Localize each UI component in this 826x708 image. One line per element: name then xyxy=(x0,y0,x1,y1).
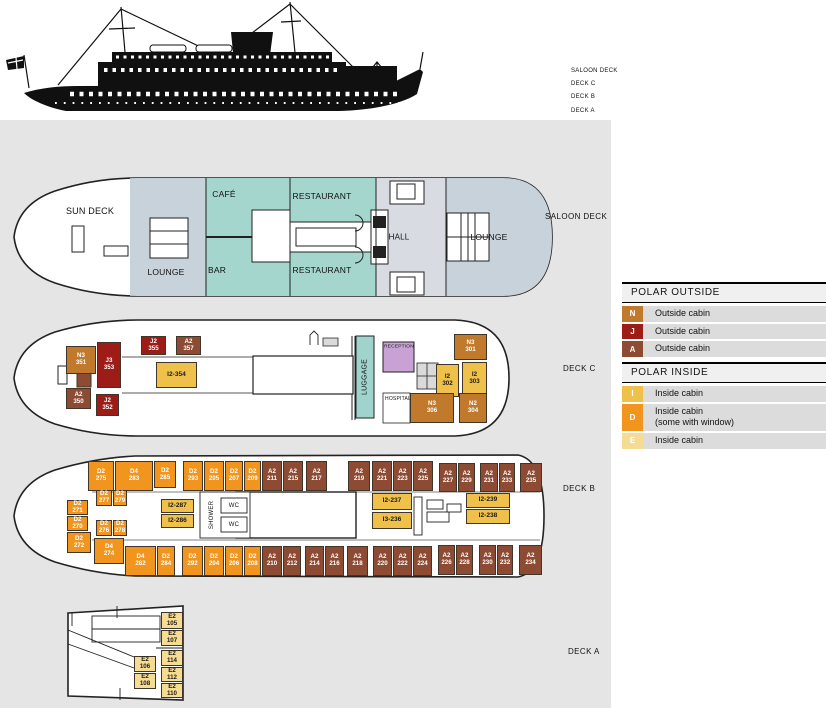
cabin-A2-235: A2235 xyxy=(520,463,542,492)
cabin-A2-216: A2216 xyxy=(325,546,344,576)
cabin-D2-270: D2270 xyxy=(67,516,88,531)
cabin-A2-219: A2219 xyxy=(348,461,370,491)
cabin-A2-210: A2210 xyxy=(262,546,282,576)
cabin-D2-206: D2206 xyxy=(225,546,243,576)
cabin-A2-225: A2225 xyxy=(413,461,433,491)
cabin-E2-110: E2110 xyxy=(161,683,183,698)
legend-label-N: Outside cabin xyxy=(643,306,710,322)
cabin-I2-238: I2-238 xyxy=(466,509,510,524)
cabin-A2-234: A2234 xyxy=(519,545,542,575)
deck-label-saloon: SALOON DECK xyxy=(545,212,607,221)
legend-swatch-D: D xyxy=(622,404,643,431)
cabin-D4-274: D4274 xyxy=(94,538,124,564)
cabin-N3-351: N3351 xyxy=(66,346,96,374)
cabin-A2-222: A2222 xyxy=(393,546,412,576)
cabin-J2-352: J2352 xyxy=(96,394,119,416)
room-label-caf-: CAFÉ xyxy=(212,189,235,199)
cabin-A2-229: A2229 xyxy=(458,463,475,492)
cabin-A2-212: A2212 xyxy=(283,546,301,576)
room-label-wc: WC xyxy=(229,503,239,509)
legend-row-I: IInside cabin xyxy=(622,386,826,402)
cabin-D2-279: D2279 xyxy=(113,490,127,506)
cabin-I3-236: I3-236 xyxy=(372,512,412,529)
cabin-D2-293: D2293 xyxy=(183,461,203,491)
cabin-N3-301: N3301 xyxy=(454,334,487,360)
cabin-A2-350: A2350 xyxy=(66,388,91,409)
cabin-A2-223: A2223 xyxy=(393,461,412,491)
cabin-A2-211: A2211 xyxy=(262,461,282,491)
cabin-J2-355: J2355 xyxy=(141,336,166,355)
cabin-A2-214: A2214 xyxy=(305,546,324,576)
deck-label-a: DECK A xyxy=(568,647,600,656)
room-label-restaurant: RESTAURANT xyxy=(293,191,352,201)
room-label-luggage: LUGGAGE xyxy=(362,359,369,395)
cabin-A2-231: A2231 xyxy=(480,463,498,492)
cabin-D2-208: D2208 xyxy=(244,546,261,576)
ship-profile-deck-label-deck-a: DECK A xyxy=(571,108,595,114)
cabin-A2-357: A2357 xyxy=(176,336,201,355)
cabin-A2-227: A2227 xyxy=(439,463,457,492)
cabin-A2-215: A2215 xyxy=(283,461,303,491)
cabin-E2-108: E2108 xyxy=(134,673,156,689)
ship-profile-deck-label-saloon-deck: SALOON DECK xyxy=(571,68,618,74)
cabin-N2-304: N2304 xyxy=(459,393,487,423)
legend-label-E: Inside cabin xyxy=(643,433,703,449)
legend-label-D: Inside cabin(some with window) xyxy=(643,404,734,431)
legend-swatch-I: I xyxy=(622,386,643,402)
legend-swatch-N: N xyxy=(622,306,643,322)
legend-header-polar-inside: POLAR INSIDE xyxy=(622,362,826,383)
cabin-D2-205: D2205 xyxy=(204,461,224,491)
room-label-hall: HALL xyxy=(389,233,410,242)
cabin-A2-230: A2230 xyxy=(479,545,496,575)
room-label-shower: SHOWER xyxy=(209,501,215,529)
cabin-A2-232: A2232 xyxy=(497,545,513,575)
room-label-sun-deck: SUN DECK xyxy=(66,206,114,216)
cabin-I2-303: I2303 xyxy=(462,362,487,395)
legend-swatch-J: J xyxy=(622,324,643,340)
ship-profile-deck-label-deck-b: DECK B xyxy=(571,94,595,100)
cabin-A2-218: A2218 xyxy=(347,546,368,576)
cabin-D4-283: D4283 xyxy=(115,461,153,491)
cabin-A2-224: A2224 xyxy=(413,546,432,576)
cabin-D2-207: D2207 xyxy=(225,461,243,491)
cabin-D2-272: D2272 xyxy=(67,532,91,553)
cabin-D2-275: D2275 xyxy=(88,461,114,491)
cabin-A2-220: A2220 xyxy=(373,546,392,576)
cabin-legend: POLAR OUTSIDENOutside cabinJOutside cabi… xyxy=(622,282,826,451)
room-label-wc: WC xyxy=(229,522,239,528)
cabin-I2-286: I2-286 xyxy=(161,514,194,528)
cabin-E2-107: E2107 xyxy=(161,630,183,646)
cabin-D2-271: D2271 xyxy=(67,500,88,515)
room-label-lounge: LOUNGE xyxy=(147,267,184,277)
legend-label-A: Outside cabin xyxy=(643,341,710,357)
legend-row-E: EInside cabin xyxy=(622,433,826,449)
legend-row-N: NOutside cabin xyxy=(622,306,826,322)
cabin-J3-353: J3353 xyxy=(97,342,121,388)
cabin-E2-105: E2105 xyxy=(161,612,183,629)
legend-label-I: Inside cabin xyxy=(643,386,703,402)
legend-label-J: Outside cabin xyxy=(643,324,710,340)
cabin-E2-114: E2114 xyxy=(161,650,183,666)
cabin-A2-233: A2233 xyxy=(499,463,515,492)
room-label-restaurant: RESTAURANT xyxy=(293,265,352,275)
legend-header-polar-outside: POLAR OUTSIDE xyxy=(622,282,826,303)
cabin-E2-106: E2106 xyxy=(134,656,156,672)
cabin-D2-209: D2209 xyxy=(244,461,261,491)
cabin-I2-287: I2-287 xyxy=(161,499,194,513)
deck-label-c: DECK C xyxy=(563,364,596,373)
cabin-D2-284: D2284 xyxy=(157,546,175,576)
legend-swatch-A: A xyxy=(622,341,643,357)
cabin-I2-354: I2-354 xyxy=(156,362,197,388)
cabin-A2-221: A2221 xyxy=(372,461,392,491)
room-label-bar: BAR xyxy=(208,265,226,275)
cabin-I2-239: I2-239 xyxy=(466,493,510,508)
cabin-D2-204: D2204 xyxy=(204,546,224,576)
room-label-lounge: LOUNGE xyxy=(470,232,507,242)
cabin-D2-285: D2285 xyxy=(154,461,176,488)
deck-label-b: DECK B xyxy=(563,484,595,493)
cabin-E2-112: E2112 xyxy=(161,667,183,682)
legend-swatch-E: E xyxy=(622,433,643,449)
legend-row-J: JOutside cabin xyxy=(622,324,826,340)
legend-row-D: DInside cabin(some with window) xyxy=(622,404,826,431)
cabin-D4-282: D4282 xyxy=(125,546,156,576)
cabin-D2-278: D2278 xyxy=(113,520,127,536)
room-label-hospital: HOSPITAL xyxy=(385,396,411,402)
cabin-D2-276: D2276 xyxy=(96,520,112,536)
cabin-I2-237: I2-237 xyxy=(372,493,412,510)
cabin-D2-277: D2277 xyxy=(96,490,112,506)
cabin-A2-217: A2217 xyxy=(306,461,327,491)
legend-row-A: AOutside cabin xyxy=(622,341,826,357)
cabin-A2-226: A2226 xyxy=(438,545,455,575)
cabin-D2-292: D2292 xyxy=(182,546,203,576)
room-label-reception: RECEPTION xyxy=(384,345,414,350)
cabin-A2-228: A2228 xyxy=(456,545,473,575)
ship-profile-deck-label-deck-c: DECK C xyxy=(571,81,595,87)
cabin-N3-306: N3306 xyxy=(410,393,454,423)
